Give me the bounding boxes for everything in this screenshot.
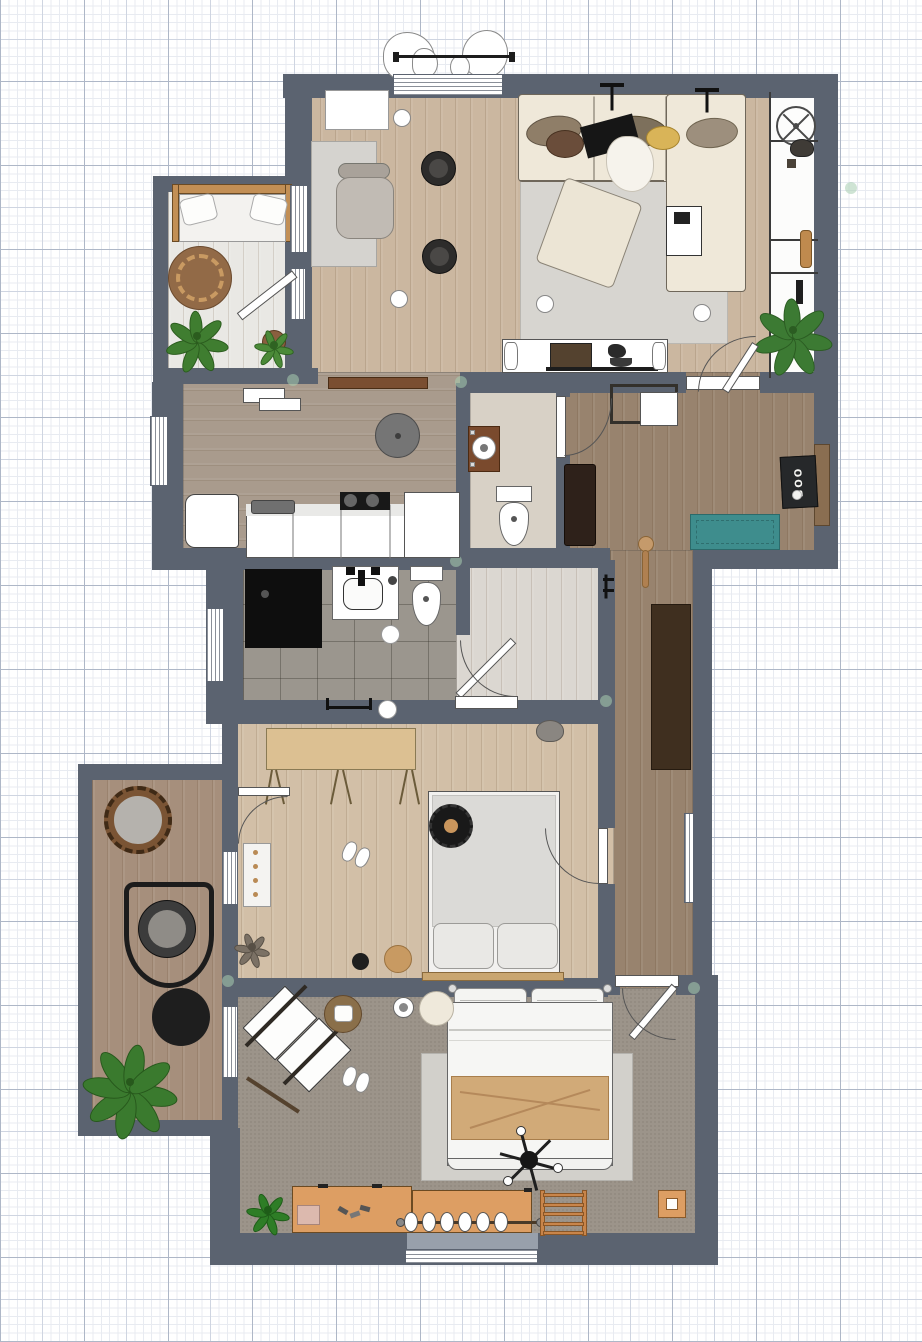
fridge[interactable] [185, 494, 239, 548]
bench-back-rail[interactable] [172, 184, 292, 194]
runner-rug[interactable] [651, 604, 691, 770]
whiteboard[interactable] [325, 90, 389, 130]
curtain-rod [396, 55, 512, 58]
coat-stand-pole [642, 550, 649, 588]
window[interactable] [393, 74, 503, 96]
dried-plant[interactable] [234, 929, 270, 965]
tv-soundbar [546, 367, 658, 371]
wall [450, 548, 610, 568]
toilet-flush [511, 516, 517, 522]
wall-lamp-pole [611, 85, 614, 110]
sofa-pillow[interactable] [546, 130, 584, 158]
counter-seam [390, 504, 391, 558]
floor-lamp[interactable] [390, 290, 408, 308]
hall-desk-chair[interactable] [640, 392, 678, 426]
rail-knob [396, 1218, 405, 1227]
snap-dot [688, 982, 700, 994]
floor-lamp[interactable] [536, 295, 554, 313]
rack-hook [253, 864, 258, 869]
sofa-pillow[interactable] [646, 126, 680, 150]
shower-drain [261, 590, 269, 598]
door-threshold[interactable] [455, 696, 518, 709]
toilet-tank[interactable] [410, 566, 443, 581]
dresser-handle [524, 1188, 532, 1192]
snap-dot [222, 975, 234, 987]
door-leaf[interactable] [598, 828, 608, 884]
wall [693, 557, 712, 984]
bed-post [603, 984, 612, 993]
wall-lamp-pole [706, 90, 709, 112]
bed2-pillow [433, 923, 494, 969]
window[interactable] [206, 608, 224, 682]
balcony-plant-large[interactable] [165, 304, 229, 368]
floor-lamp[interactable] [393, 109, 411, 127]
cream-pouf[interactable] [419, 991, 454, 1026]
wc-sink-drain [480, 444, 488, 452]
snap-dot [600, 695, 612, 707]
floor-vase[interactable] [504, 342, 518, 370]
floor-lamp[interactable] [693, 304, 711, 322]
sheet-fold [449, 1029, 611, 1031]
room-vestibule [456, 560, 600, 712]
bed2-base-board [422, 972, 564, 981]
wc-tap [470, 462, 475, 467]
tv-screen[interactable] [550, 343, 592, 369]
hanging-chair-seat [148, 910, 186, 948]
bath-faucet [358, 570, 365, 586]
wall-cabinet[interactable] [259, 398, 301, 411]
wc-tap [470, 430, 475, 435]
window[interactable] [150, 416, 168, 486]
decor-bowl [610, 358, 632, 367]
wall [78, 764, 238, 780]
wall [598, 884, 615, 985]
speaker-dot[interactable] [352, 953, 369, 970]
ceiling-fan[interactable] [499, 1130, 559, 1190]
hall-sideboard[interactable] [564, 464, 596, 546]
pouf-dark-ring [430, 247, 449, 266]
handbag[interactable] [790, 139, 814, 157]
storage-box-pink[interactable] [297, 1205, 320, 1225]
sofa-throw-blanket[interactable] [606, 136, 654, 192]
headboard-tuft [460, 1000, 520, 1001]
balcony-plant-small[interactable] [254, 325, 294, 365]
decor-bird [608, 344, 626, 358]
side-table-item [674, 212, 690, 224]
bath-knob [371, 567, 380, 575]
wreath-center [444, 819, 458, 833]
rack-hook [253, 850, 258, 855]
ghost-icon [792, 490, 802, 500]
balcony-plant-big[interactable] [82, 1034, 178, 1130]
clothes-hangers[interactable] [404, 1212, 512, 1232]
kitchen-counter-corner[interactable] [404, 492, 460, 558]
bath-knob [346, 567, 355, 575]
bath-stool[interactable] [378, 700, 397, 719]
rack-hook [253, 892, 258, 897]
curtain-rod-end [509, 52, 515, 62]
bath-accessory [388, 576, 397, 585]
bench-post [172, 184, 179, 242]
toilet-tank[interactable] [496, 486, 532, 502]
ladder-rack[interactable] [540, 1190, 587, 1236]
corridor-opening[interactable] [684, 813, 694, 903]
wall [598, 700, 615, 828]
wall-hook [603, 589, 614, 592]
window[interactable] [222, 1006, 238, 1078]
curtain-rod-end [393, 52, 399, 62]
window[interactable] [405, 1249, 538, 1264]
shelf-item[interactable] [787, 159, 796, 168]
kitchen-shelf[interactable] [328, 377, 428, 389]
bath-stool[interactable] [381, 625, 400, 644]
round-rug-dots [176, 254, 224, 302]
sheet-fold [449, 1040, 611, 1041]
wall [456, 566, 470, 635]
kitchen-sink[interactable] [251, 500, 295, 514]
rack-hook [253, 878, 258, 883]
door-leaf[interactable] [238, 787, 290, 796]
towel-rack-post [369, 698, 372, 710]
floorplan-canvas: BOO [0, 0, 922, 1342]
shower-tray[interactable] [245, 569, 322, 648]
bedroom2-desk[interactable] [266, 728, 416, 770]
burner[interactable] [344, 494, 357, 507]
burner[interactable] [366, 494, 379, 507]
boo-chalkboard[interactable]: BOO [780, 455, 819, 509]
window[interactable] [290, 185, 308, 253]
disc-decor-center [399, 1003, 408, 1012]
hat[interactable] [536, 720, 564, 742]
wall [556, 383, 570, 397]
teal-bench-stitch [696, 520, 774, 544]
pouf-dark-ring [429, 159, 448, 178]
closet-shelf-divider [770, 272, 818, 274]
bush-plant[interactable] [246, 1188, 290, 1232]
kitchen-rug-dot [395, 433, 401, 439]
towel-rack-post [326, 698, 329, 710]
office-chair-seat[interactable] [336, 177, 394, 239]
snap-dot [287, 374, 299, 386]
wall [695, 975, 718, 1265]
cutting-board[interactable] [800, 230, 812, 268]
closet-plant[interactable] [753, 290, 833, 370]
rattan-chair-weave [104, 786, 172, 854]
door-threshold[interactable] [615, 975, 679, 987]
dresser-handle [372, 1184, 382, 1188]
bed2-pillow [497, 923, 558, 969]
side-table-tray [334, 1005, 353, 1022]
window[interactable] [222, 851, 238, 905]
dresser-handle [318, 1184, 328, 1188]
picture-frame-inner [666, 1198, 678, 1210]
towel-rack-bar[interactable] [326, 706, 372, 709]
toilet-flush [423, 596, 429, 602]
headboard-tuft [537, 1000, 597, 1001]
snap-dot [845, 182, 857, 194]
wall-hook [603, 578, 614, 581]
snap-dot [455, 376, 467, 388]
floor-vase[interactable] [652, 342, 666, 370]
counter-seam [341, 504, 342, 558]
pouf-tan[interactable] [384, 945, 412, 973]
